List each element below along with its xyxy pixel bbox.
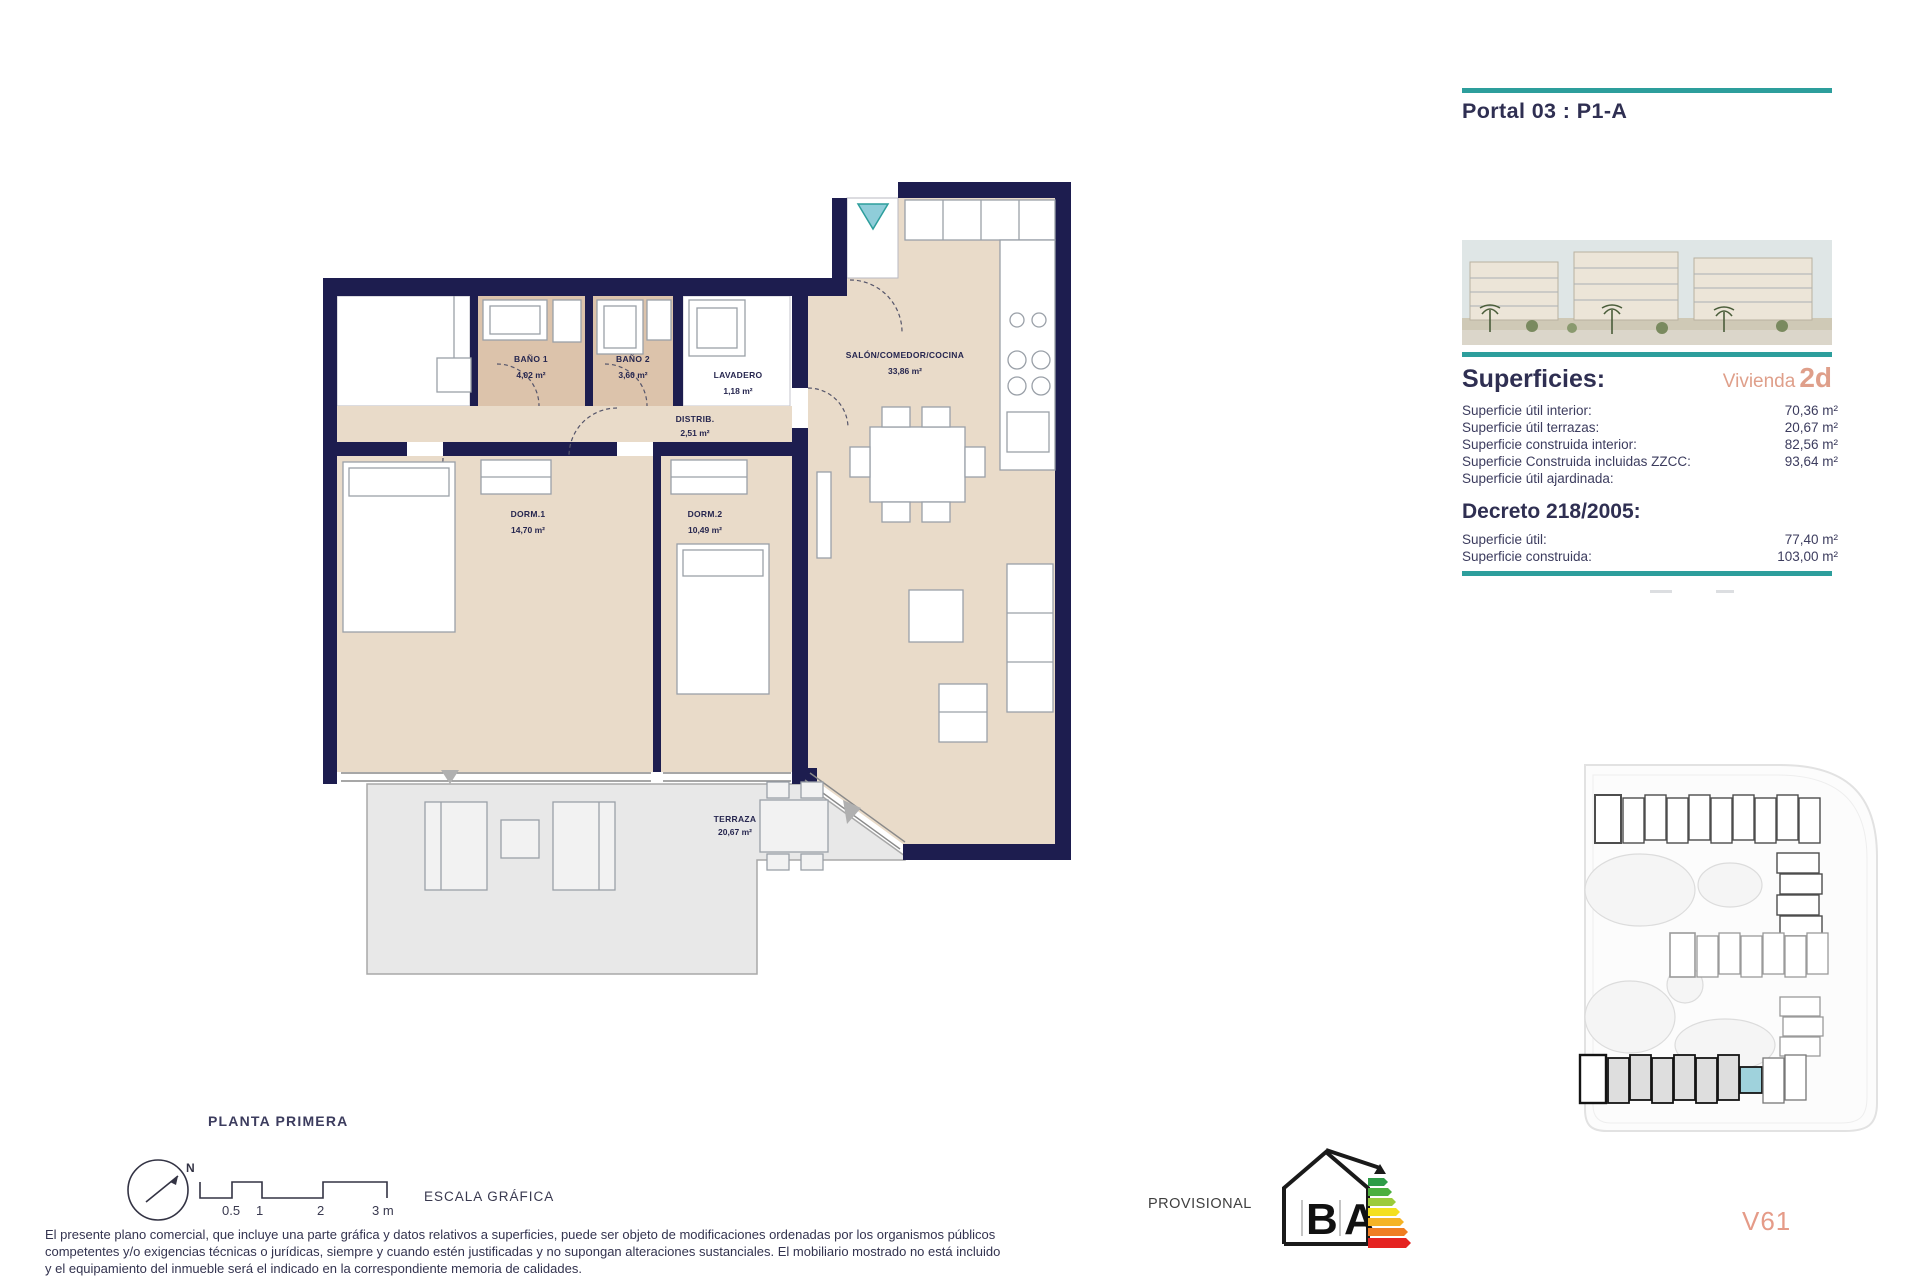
room-label-dorm2: DORM.2 [688, 509, 723, 519]
provisional-label: PROVISIONAL [1148, 1196, 1252, 1212]
svg-text:4,02 m²: 4,02 m² [516, 370, 545, 380]
decreto-table: Superficie útil:77,40 m² Superficie cons… [1462, 531, 1838, 565]
building-render-image [1462, 240, 1832, 345]
superficies-title: Superficies: [1462, 365, 1605, 394]
svg-text:2,51 m²: 2,51 m² [680, 428, 709, 438]
room-label-lavadero: LAVADERO [714, 370, 763, 380]
svg-text:33,86 m²: 33,86 m² [888, 366, 922, 376]
north-letter: N [186, 1161, 195, 1175]
unit-row-middle [1670, 933, 1828, 977]
energy-rating-icon: B A [1268, 1138, 1413, 1250]
page-title: Portal 03 : P1-A [1462, 99, 1627, 124]
floor-level-label: PLANTA PRIMERA [208, 1113, 348, 1129]
scale-tick: 1 [256, 1203, 263, 1218]
svg-text:10,49 m²: 10,49 m² [688, 525, 722, 535]
faint-mark [1716, 590, 1734, 593]
table-row: Superficie útil ajardinada: [1462, 470, 1838, 487]
energy-letter-b: B [1306, 1195, 1338, 1244]
unit-version-code: V61 [1742, 1206, 1791, 1237]
svg-text:20,67 m²: 20,67 m² [718, 827, 752, 837]
plan-sheet-page: BAÑO 1 4,02 m² BAÑO 2 3,60 m² LAVADERO 1… [0, 0, 1920, 1280]
teal-rule-top [1462, 88, 1832, 93]
disclaimer-text: El presente plano comercial, que incluye… [45, 1226, 1145, 1277]
floor-plan: BAÑO 1 4,02 m² BAÑO 2 3,60 m² LAVADERO 1… [305, 172, 1165, 1002]
unit-row-top [1595, 795, 1820, 843]
table-row: Superficie construida interior:82,56 m² [1462, 436, 1838, 453]
room-label-distrib: DISTRIB. [676, 414, 715, 424]
table-row: Superficie Construida incluidas ZZCC:93,… [1462, 453, 1838, 470]
svg-text:1,18 m²: 1,18 m² [723, 386, 752, 396]
teal-rule-bottom [1462, 571, 1832, 576]
site-plan-keymap [1545, 735, 1915, 1145]
unit-col-right-top [1777, 853, 1822, 936]
window-marker-icon [441, 770, 459, 784]
room-label-bano1: BAÑO 1 [514, 354, 548, 364]
room-label-salon: SALÓN/COMEDOR/COCINA [846, 349, 964, 360]
teal-rule-superficies [1462, 352, 1832, 357]
superficies-header: Superficies: Vivienda2d [1462, 362, 1832, 394]
table-row: Superficie útil terrazas:20,67 m² [1462, 419, 1838, 436]
scale-tick: 3 m [372, 1203, 394, 1218]
room-label-bano2: BAÑO 2 [616, 354, 650, 364]
room-label-terraza: TERRAZA [714, 814, 757, 824]
superficies-table: Superficie útil interior:70,36 m² Superf… [1462, 402, 1838, 487]
table-row: Superficie útil:77,40 m² [1462, 531, 1838, 548]
unit-col-right-bottom [1780, 997, 1823, 1056]
scale-tick: 0.5 [222, 1203, 240, 1218]
decreto-title: Decreto 218/2005: [1462, 500, 1641, 524]
scale-caption: ESCALA GRÁFICA [424, 1189, 554, 1204]
room-label-dorm1: DORM.1 [511, 509, 546, 519]
scale-tick: 2 [317, 1203, 324, 1218]
table-row: Superficie construida:103,00 m² [1462, 548, 1838, 565]
faint-mark [1650, 590, 1672, 593]
svg-text:3,60 m²: 3,60 m² [618, 370, 647, 380]
table-row: Superficie útil interior:70,36 m² [1462, 402, 1838, 419]
highlighted-unit [1740, 1067, 1762, 1093]
svg-text:14,70 m²: 14,70 m² [511, 525, 545, 535]
unit-row-bottom-current [1580, 1055, 1806, 1103]
vivienda-badge: Vivienda2d [1723, 362, 1832, 394]
scale-bar [195, 1178, 395, 1204]
